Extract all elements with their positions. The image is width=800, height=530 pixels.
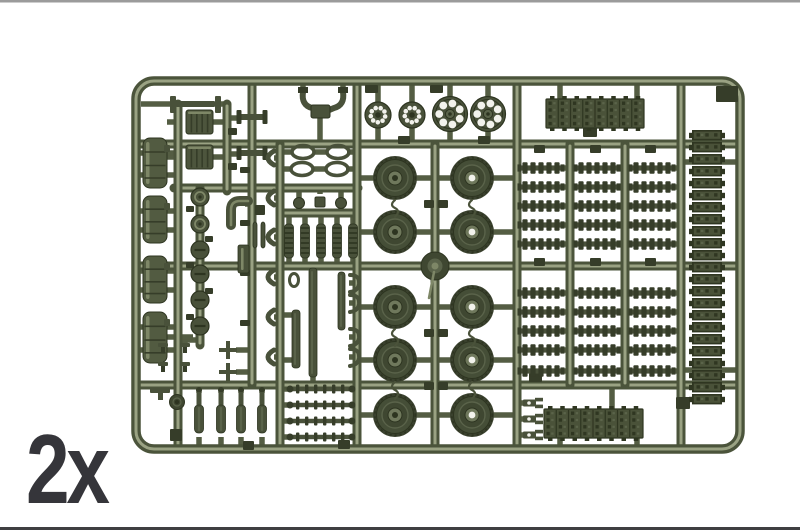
wheel-hub-part xyxy=(574,325,621,337)
wheel-hub-part xyxy=(629,287,676,299)
track-section-vertical xyxy=(689,130,725,404)
hatch-disc xyxy=(191,317,209,335)
wheel-hub-part xyxy=(629,365,676,377)
fuel-tank xyxy=(143,256,170,303)
clevis-fork xyxy=(523,414,543,424)
hatch-disc xyxy=(191,241,209,259)
wheel-hub-part xyxy=(629,344,676,356)
storage-drum xyxy=(186,110,213,134)
fuel-tank xyxy=(143,312,170,363)
quantity-label: 2x xyxy=(26,420,107,518)
wheel-hub-part xyxy=(574,219,621,231)
wheel-hub-part xyxy=(518,287,565,299)
clevis-fork xyxy=(523,398,543,408)
knob-part xyxy=(294,198,305,209)
torsion-rod xyxy=(287,417,356,426)
model-kit-sprue-illustration: 2x xyxy=(0,0,800,530)
shackle-ring xyxy=(290,274,299,287)
tow-loop xyxy=(326,163,348,176)
track-section-horizontal xyxy=(544,406,643,441)
wheel-hub-part xyxy=(574,238,621,250)
shock-damper xyxy=(195,387,204,433)
suspension-spring xyxy=(301,224,310,258)
mushroom-cap xyxy=(158,362,168,372)
wheel-hub-part xyxy=(629,162,676,174)
road-wheel xyxy=(373,156,417,200)
wheel-hub-part xyxy=(574,162,621,174)
cross-part xyxy=(219,363,237,381)
torsion-rod xyxy=(287,401,356,410)
wheel-hub-part xyxy=(574,344,621,356)
wheel-hub-part xyxy=(574,306,621,318)
track-section-horizontal xyxy=(546,96,644,131)
clevis-fork xyxy=(523,430,543,440)
wheel-hub-part xyxy=(629,306,676,318)
wheel-hub-part xyxy=(518,306,565,318)
tow-loop xyxy=(291,163,313,176)
hatch-disc xyxy=(191,265,209,283)
drive-sprocket-wheel xyxy=(471,97,506,132)
hatch-disc xyxy=(191,215,209,233)
wheel-hub-part xyxy=(518,238,565,250)
wheel-hub-part xyxy=(574,181,621,193)
tool-bar xyxy=(253,222,257,248)
road-wheel xyxy=(373,285,417,329)
idler-wheel xyxy=(365,102,391,128)
storage-drum xyxy=(186,145,213,169)
tool-bar xyxy=(292,310,300,368)
wheel-hub-part xyxy=(518,325,565,337)
knob-part xyxy=(336,198,347,209)
wheel-hub-part xyxy=(629,200,676,212)
cross-part xyxy=(219,341,237,359)
tool-bar xyxy=(338,272,345,330)
hatch-disc xyxy=(191,291,209,309)
c-brackets xyxy=(268,151,274,364)
wheel-hub-part xyxy=(629,238,676,250)
wheel-hub-part xyxy=(518,200,565,212)
yoke-bracket xyxy=(298,87,348,118)
wheel-hub-part xyxy=(518,344,565,356)
wheel-hub-part xyxy=(629,325,676,337)
road-wheel xyxy=(450,156,494,200)
wheel-hub-part xyxy=(574,287,621,299)
fuel-tank xyxy=(143,196,170,243)
wheel-hub-part xyxy=(518,365,565,377)
t-bracket xyxy=(150,388,170,400)
idler-wheel-small xyxy=(170,395,185,410)
sprue-svg xyxy=(0,0,800,530)
shock-damper xyxy=(217,387,226,433)
suspension-spring xyxy=(317,224,326,258)
suspension-spring xyxy=(333,224,342,258)
wheel-hub-part xyxy=(629,219,676,231)
road-wheel xyxy=(450,285,494,329)
tool-bar xyxy=(309,268,317,377)
suspension-spring xyxy=(349,224,358,258)
hatch-disc xyxy=(191,188,209,206)
tool-bar xyxy=(261,222,265,248)
fuel-tank xyxy=(143,138,170,188)
suspension-spring xyxy=(285,224,294,258)
wheel-hub-part xyxy=(574,200,621,212)
idler-wheel xyxy=(399,102,425,128)
shock-damper xyxy=(237,387,246,433)
wheel-hub-part xyxy=(629,181,676,193)
shock-damper xyxy=(258,387,267,433)
wheel-hub-part xyxy=(574,365,621,377)
drive-sprocket-wheel xyxy=(433,97,468,132)
wheel-hub-part xyxy=(518,162,565,174)
wheel-hub-part xyxy=(518,219,565,231)
wheel-hub-part xyxy=(518,181,565,193)
knob-part xyxy=(315,197,325,207)
panel-part xyxy=(238,245,249,273)
